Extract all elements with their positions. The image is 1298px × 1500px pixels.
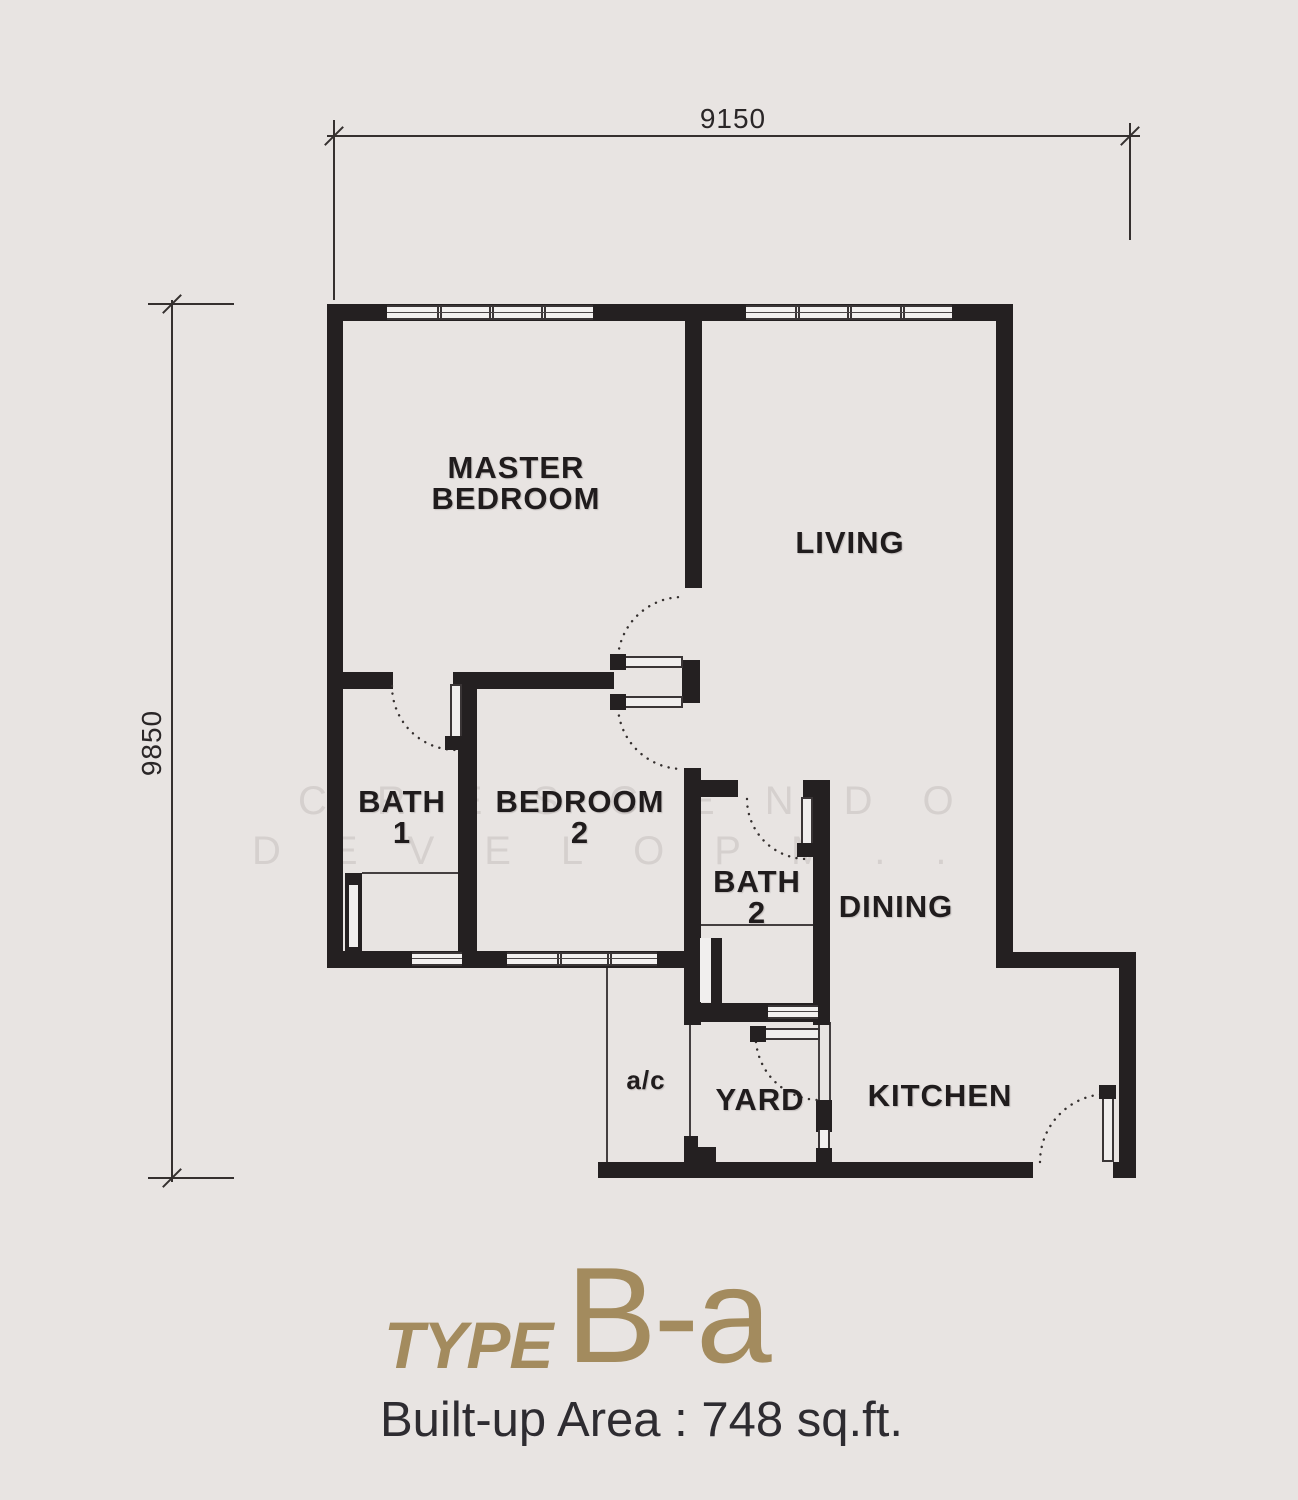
window-mullion xyxy=(557,954,562,964)
dimension-left-value: 9850 xyxy=(136,698,168,788)
room-label-line: BEDROOM xyxy=(480,786,680,817)
window-bedroom2 xyxy=(507,952,657,966)
wall-right-living xyxy=(996,304,1013,968)
window-master-bedroom xyxy=(387,305,593,320)
dimension-top-value: 9150 xyxy=(693,103,773,135)
bath1-fixture-line xyxy=(362,872,458,874)
door-arc-bedroom2 xyxy=(618,708,683,769)
door-end-bath2 xyxy=(797,843,814,857)
room-label-master-bedroom: MASTER BEDROOM xyxy=(406,452,626,514)
window-mullion xyxy=(607,954,612,964)
window-bath2 xyxy=(768,1005,818,1019)
wall-bottom-right-piece xyxy=(1113,1162,1136,1178)
door-leaf-kitchen xyxy=(1102,1090,1114,1162)
room-label-ac: a/c xyxy=(606,1065,686,1096)
wall-left xyxy=(327,304,343,968)
wall-bottom xyxy=(598,1162,1033,1178)
window-mullion xyxy=(541,307,546,318)
window-mullion xyxy=(795,307,800,318)
dimension-line-left xyxy=(171,300,173,1182)
dimension-ext-top-right xyxy=(1129,123,1131,240)
room-label-yard: YARD xyxy=(690,1084,830,1115)
door-arc-master-bedroom xyxy=(618,597,683,656)
wall-jog-dining-kitchen xyxy=(996,952,1136,968)
wall-master-bottom-left xyxy=(327,672,393,689)
window-mullion xyxy=(847,307,852,318)
room-label-kitchen: KITCHEN xyxy=(850,1080,1030,1111)
wall-master-living xyxy=(685,304,702,588)
dimension-ext-left-top xyxy=(148,303,234,305)
wall-bedroom2-top xyxy=(453,672,614,689)
door-end-master-bedroom xyxy=(610,654,626,670)
room-label-line: MASTER xyxy=(406,452,626,483)
window-mullion xyxy=(437,307,442,318)
door-end-kitchen xyxy=(1099,1085,1116,1099)
room-label-line: 2 xyxy=(480,817,680,848)
bath2-shaft xyxy=(700,938,711,1002)
dimension-ext-left-bottom xyxy=(148,1177,234,1179)
wall-bath2-shaft-strip xyxy=(711,938,722,1005)
wall-yard-left-bottom xyxy=(684,1136,698,1168)
door-end-yard xyxy=(750,1026,766,1042)
wall-yard-stub xyxy=(698,1147,716,1166)
bath1-shaft xyxy=(349,885,358,947)
window-mullion xyxy=(900,307,905,318)
wall-kitchen-right xyxy=(1119,952,1136,1178)
room-label-line: BEDROOM xyxy=(406,483,626,514)
room-label-line: 1 xyxy=(332,817,472,848)
yard-left-line xyxy=(689,1025,691,1136)
door-end-bath1 xyxy=(445,736,463,750)
floorplan-page: { "title": { "type_label": "TYPE", "type… xyxy=(0,0,1298,1500)
room-label-dining: DINING xyxy=(806,891,986,922)
dimension-ext-top-left xyxy=(333,120,335,300)
unit-type-code: B-a xyxy=(566,1247,769,1383)
window-mullion xyxy=(489,307,494,318)
room-label-bedroom2: BEDROOM 2 xyxy=(480,786,680,848)
room-label-bath1: BATH 1 xyxy=(332,786,472,848)
wall-yard-kitchen-divider-lower xyxy=(816,1148,832,1164)
door-end-bedroom2 xyxy=(610,694,626,710)
unit-type-label: TYPE xyxy=(384,1307,552,1383)
built-up-area-text: Built-up Area : 748 sq.ft. xyxy=(380,1392,903,1448)
window-yard-kitchen xyxy=(818,1130,830,1148)
wall-door-pier xyxy=(682,660,700,703)
wall-bath2-top-left xyxy=(700,780,738,797)
dimension-line-top xyxy=(327,135,1140,137)
window-bath1 xyxy=(412,952,462,966)
room-label-living: LIVING xyxy=(760,527,940,558)
room-label-line: BATH xyxy=(332,786,472,817)
window-living xyxy=(746,305,952,320)
door-arc-kitchen xyxy=(1040,1094,1108,1162)
